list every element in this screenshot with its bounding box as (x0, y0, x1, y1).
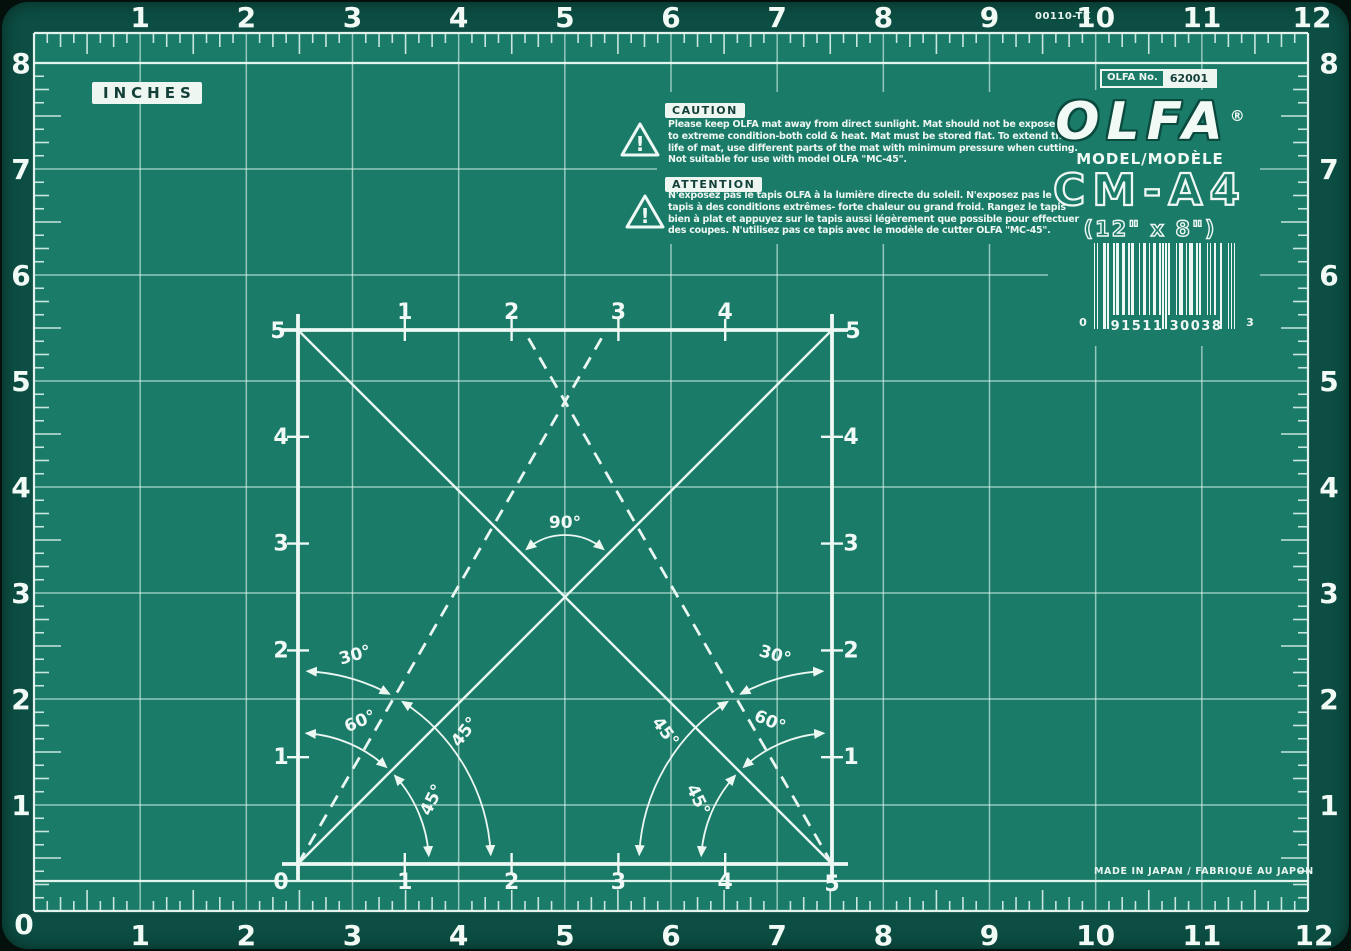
attention-line: bien à plat et appuyez sur le tapis auss… (668, 214, 1079, 226)
barcode-bar (1149, 243, 1150, 315)
olfa-no-label: OLFA No. (1102, 71, 1163, 86)
caution-line: life of mat, use different parts of the … (668, 143, 1078, 155)
barcode-bar (1162, 243, 1163, 329)
svg-text:3: 3 (343, 919, 362, 951)
barcode-bar (1107, 243, 1108, 329)
svg-text:1: 1 (273, 745, 288, 770)
svg-text:3: 3 (611, 300, 626, 325)
attention-line: tapis à des conditions extrêmes- forte c… (668, 202, 1079, 214)
svg-text:3: 3 (611, 870, 626, 895)
barcode-group2: 30038 (1170, 319, 1223, 334)
barcode-bar (1186, 243, 1187, 315)
svg-text:60°: 60° (342, 706, 379, 737)
attention-line: des coupes. N'utilisez pas ce tapis avec… (668, 225, 1079, 237)
svg-text:11: 11 (1182, 1, 1221, 34)
barcode-bar (1113, 243, 1114, 315)
svg-text:5: 5 (845, 319, 860, 344)
caution-line: Not suitable for use with model OLFA "MC… (668, 154, 1078, 166)
svg-text:!: ! (640, 204, 649, 228)
olfa-logo-text: OLFA (1055, 92, 1229, 152)
barcode-group1: 91511 (1111, 319, 1164, 334)
svg-text:1: 1 (397, 870, 412, 895)
svg-text:11: 11 (1182, 919, 1221, 951)
svg-text:4: 4 (718, 870, 733, 895)
barcode-bar (1159, 243, 1160, 315)
svg-text:0: 0 (273, 870, 288, 895)
svg-text:12: 12 (1293, 1, 1332, 34)
warning-triangle-icons: !! (622, 124, 663, 228)
inches-label: INCHES (92, 82, 202, 104)
svg-text:8: 8 (874, 919, 893, 951)
olfa-no-value: 62001 (1163, 71, 1215, 86)
svg-text:1: 1 (130, 919, 149, 951)
barcode-bar (1231, 243, 1232, 329)
svg-text:4: 4 (11, 471, 30, 504)
svg-text:2: 2 (504, 300, 519, 325)
barcode-bar (1094, 243, 1095, 329)
svg-text:6: 6 (661, 1, 680, 34)
svg-text:8: 8 (11, 47, 30, 80)
barcode-bar (1210, 243, 1211, 315)
attention-line: N'exposez pas le tapis OLFA à la lumière… (668, 190, 1079, 202)
barcode-bar (1220, 243, 1221, 329)
svg-text:2: 2 (273, 638, 288, 663)
barcode-bar (1116, 243, 1119, 315)
barcode-bar (1234, 243, 1235, 329)
made-in-label: MADE IN JAPAN / FABRIQUÉ AU JAPON (1094, 866, 1314, 877)
svg-text:5: 5 (555, 1, 574, 34)
svg-text:4: 4 (718, 300, 733, 325)
svg-text:5: 5 (824, 872, 839, 897)
svg-text:9: 9 (980, 919, 999, 951)
model-code: CM-A4 (1050, 165, 1250, 216)
svg-text:3: 3 (843, 532, 858, 557)
svg-text:5: 5 (270, 319, 285, 344)
barcode-bar (1165, 243, 1166, 329)
svg-text:5: 5 (555, 919, 574, 951)
barcode-bar (1179, 243, 1183, 315)
svg-text:45°: 45° (416, 781, 448, 819)
olfa-item-number-box: OLFA No. 62001 (1100, 69, 1217, 88)
svg-text:4: 4 (449, 1, 468, 34)
svg-text:10: 10 (1076, 919, 1115, 951)
attention-text: N'exposez pas le tapis OLFA à la lumière… (668, 190, 1079, 237)
svg-text:6: 6 (11, 259, 30, 292)
barcode-bar (1128, 243, 1129, 315)
svg-text:3: 3 (1319, 577, 1338, 610)
svg-text:1: 1 (397, 300, 412, 325)
svg-text:60°: 60° (751, 706, 788, 737)
svg-text:0: 0 (14, 908, 33, 941)
barcode-bar (1228, 243, 1229, 329)
svg-text:4: 4 (273, 425, 288, 450)
svg-text:30°: 30° (337, 641, 373, 669)
cutting-mat-photo: 1234567891011121234567891011128765432108… (0, 0, 1351, 951)
svg-text:1: 1 (1319, 789, 1338, 822)
barcode-bar (1131, 243, 1134, 315)
svg-text:3: 3 (11, 577, 30, 610)
svg-text:12: 12 (1295, 919, 1334, 951)
svg-text:1: 1 (130, 1, 149, 34)
barcode-bar (1189, 243, 1193, 315)
part-number: 00110-TK (1035, 11, 1091, 22)
svg-text:2: 2 (11, 683, 30, 716)
barcode-bar (1199, 243, 1200, 315)
svg-text:8: 8 (1319, 47, 1338, 80)
svg-text:6: 6 (1319, 259, 1338, 292)
svg-text:2: 2 (504, 870, 519, 895)
svg-text:4: 4 (449, 919, 468, 951)
barcode-bars (1094, 243, 1235, 331)
barcode-bar (1143, 243, 1146, 315)
caution-title: CAUTION (665, 103, 745, 118)
barcode-bar (1103, 243, 1106, 329)
barcode-bar (1139, 243, 1140, 315)
barcode-bar (1176, 243, 1177, 315)
svg-text:90°: 90° (549, 513, 581, 533)
model-size: (12" x 8") (1050, 217, 1250, 241)
svg-text:3: 3 (343, 1, 362, 34)
svg-text:4: 4 (843, 425, 858, 450)
barcode-digit-right: 3 (1246, 316, 1254, 329)
svg-text:4: 4 (1319, 471, 1338, 504)
svg-text:7: 7 (11, 153, 30, 186)
caution-line: Please keep OLFA mat away from direct su… (668, 119, 1078, 131)
svg-text:2: 2 (1319, 683, 1338, 716)
svg-text:7: 7 (1319, 153, 1338, 186)
registered-mark: ® (1230, 107, 1245, 125)
svg-text:5: 5 (1319, 365, 1338, 398)
barcode-bar (1214, 243, 1215, 315)
svg-text:1: 1 (11, 789, 30, 822)
barcode-bar (1196, 243, 1197, 315)
svg-text:2: 2 (843, 638, 858, 663)
barcode-digit-left: 0 (1079, 316, 1087, 329)
svg-text:30°: 30° (757, 641, 793, 669)
barcode-bar (1168, 243, 1169, 315)
barcode-bar (1153, 243, 1156, 315)
caution-line: to extreme condition-both cold & heat. M… (668, 131, 1078, 143)
svg-text:5: 5 (11, 365, 30, 398)
svg-text:3: 3 (273, 532, 288, 557)
barcode-bar (1122, 243, 1125, 315)
svg-text:45°: 45° (647, 713, 682, 751)
upc-barcode: 0 91511 30038 3 (1080, 243, 1258, 343)
barcode-bar (1207, 243, 1208, 315)
svg-text:2: 2 (237, 1, 256, 34)
svg-text:!: ! (635, 132, 644, 156)
olfa-logo: OLFA® (1050, 92, 1250, 152)
svg-text:7: 7 (767, 919, 786, 951)
svg-text:45°: 45° (447, 713, 482, 751)
svg-text:7: 7 (767, 1, 786, 34)
svg-text:8: 8 (874, 1, 893, 34)
svg-text:45°: 45° (682, 781, 714, 819)
barcode-bar (1097, 243, 1098, 329)
svg-text:1: 1 (843, 745, 858, 770)
caution-text: Please keep OLFA mat away from direct su… (668, 119, 1078, 166)
svg-text:9: 9 (980, 1, 999, 34)
svg-text:6: 6 (661, 919, 680, 951)
svg-text:2: 2 (237, 919, 256, 951)
